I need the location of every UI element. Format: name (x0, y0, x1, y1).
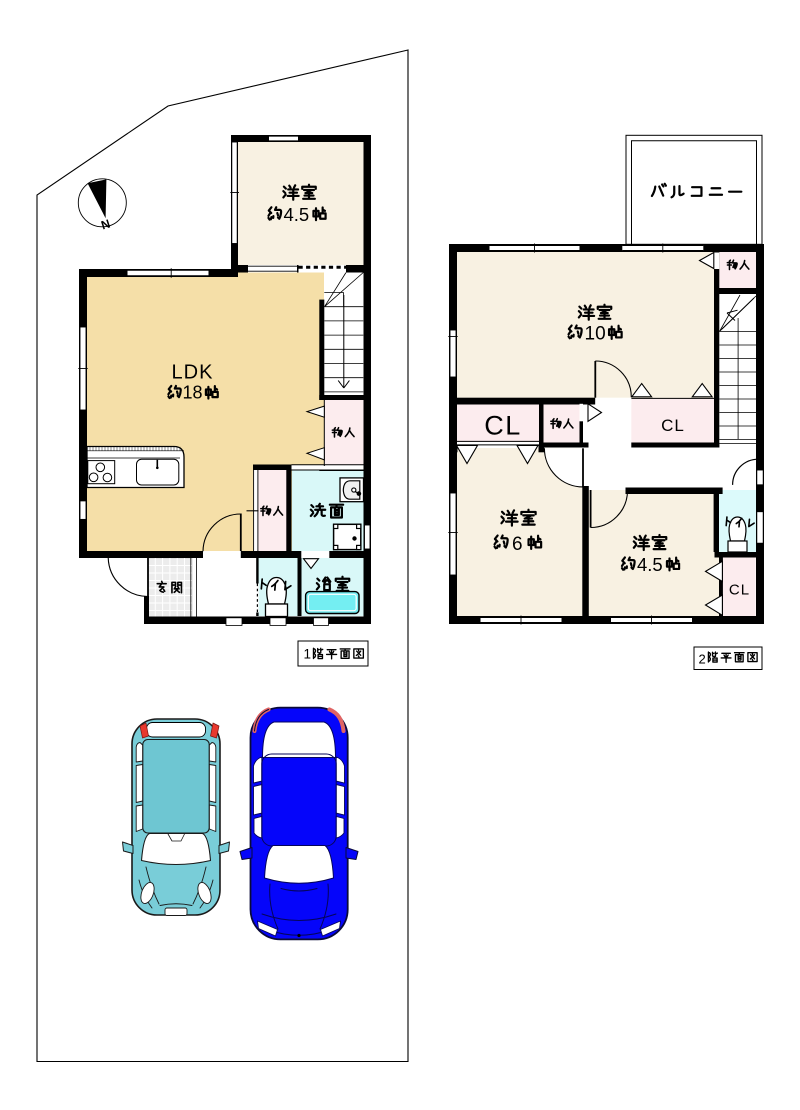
svg-text:CL: CL (729, 582, 750, 599)
svg-text:CL: CL (661, 416, 685, 435)
svg-text:2: 2 (699, 652, 706, 667)
svg-text:18: 18 (183, 383, 203, 403)
svg-text:LDK: LDK (172, 362, 214, 384)
svg-text:6: 6 (512, 534, 523, 555)
svg-text:4.5: 4.5 (284, 204, 310, 225)
svg-text:CL: CL (484, 411, 522, 441)
svg-text:10: 10 (585, 324, 606, 345)
svg-text:4.5: 4.5 (637, 554, 663, 575)
svg-text:1: 1 (304, 647, 312, 662)
